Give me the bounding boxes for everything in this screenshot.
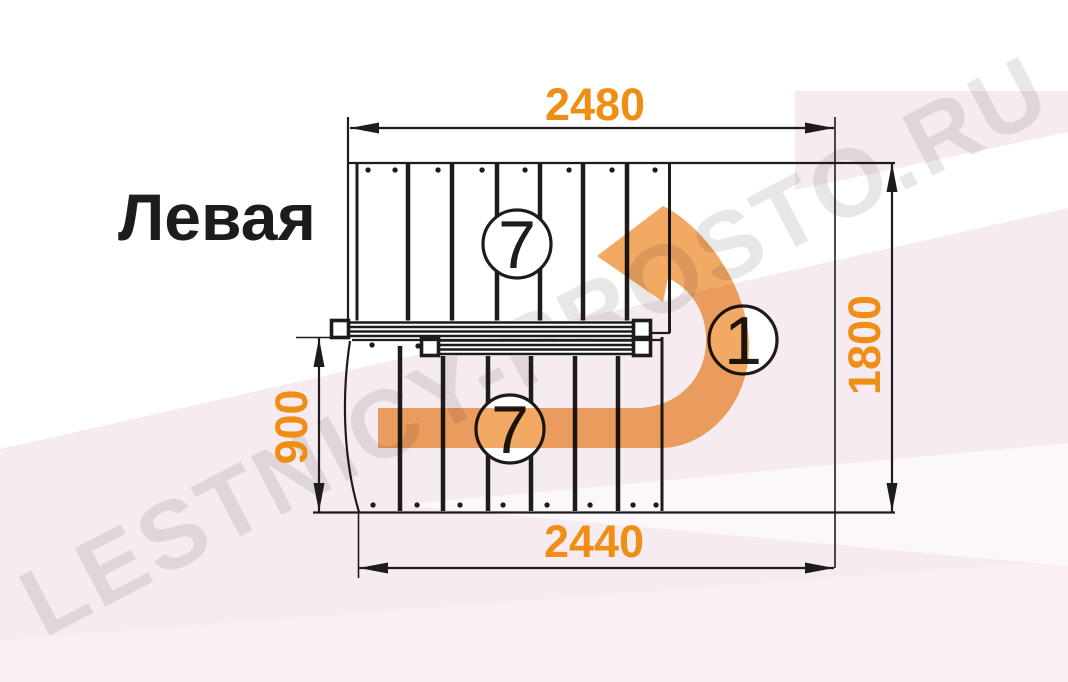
dim-left-value: 900 [266, 389, 317, 464]
dim-right-value: 1800 [839, 295, 890, 395]
upper-flight-step-count: 7 [498, 207, 536, 283]
page-title: Левая [118, 180, 316, 254]
stair-plan-drawing: LESTNICY-PROSTO.RU Левая [0, 0, 1068, 682]
staircase-plan-page: LESTNICY-PROSTO.RU Левая [0, 0, 1068, 682]
landing-baluster-dots [372, 345, 418, 346]
rail-post-cap [634, 321, 651, 338]
dim-bottom-value: 2440 [544, 516, 644, 567]
rail-post-cap [332, 321, 349, 338]
dim-arrow-left-icon [350, 123, 379, 134]
dim-top-value: 2480 [545, 79, 645, 130]
dim-arrow-up-icon [314, 338, 325, 367]
